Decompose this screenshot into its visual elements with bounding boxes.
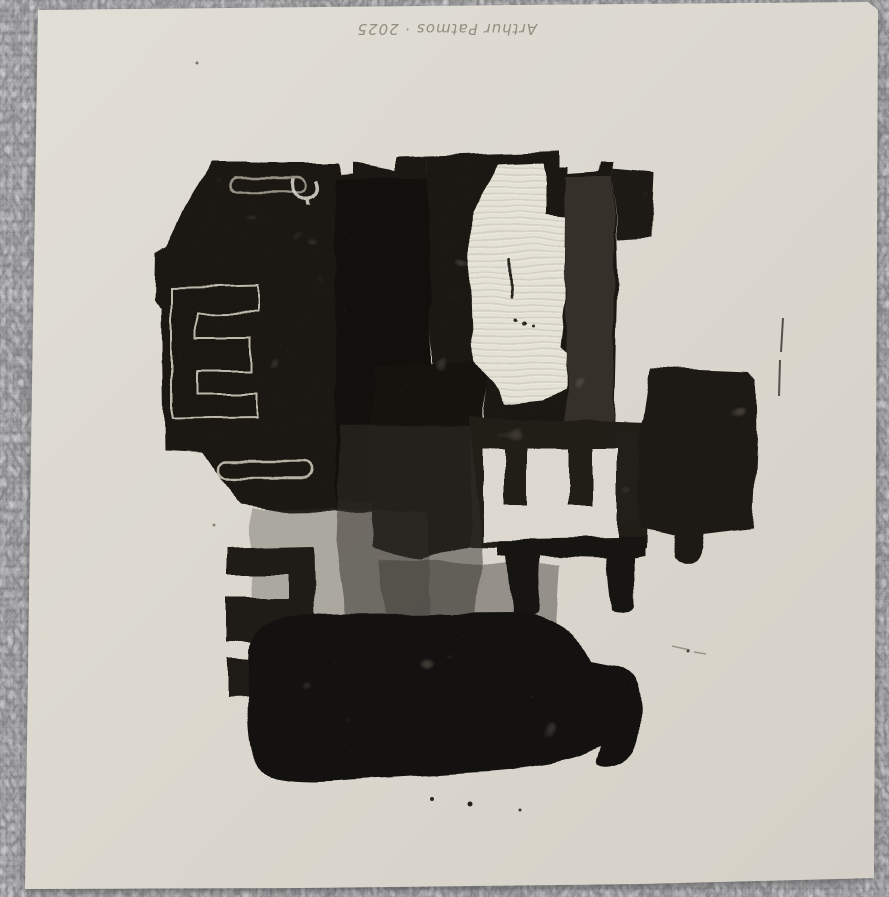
letter-e-white-unprinted bbox=[483, 448, 617, 540]
pencil-signature: Arthur Patmos · 2025 bbox=[357, 20, 538, 38]
ink-block-top-right-notch bbox=[614, 168, 654, 239]
letter-e-engraved-outline bbox=[172, 286, 258, 417]
artwork-photo: Arthur Patmos · 2025 bbox=[0, 0, 889, 897]
